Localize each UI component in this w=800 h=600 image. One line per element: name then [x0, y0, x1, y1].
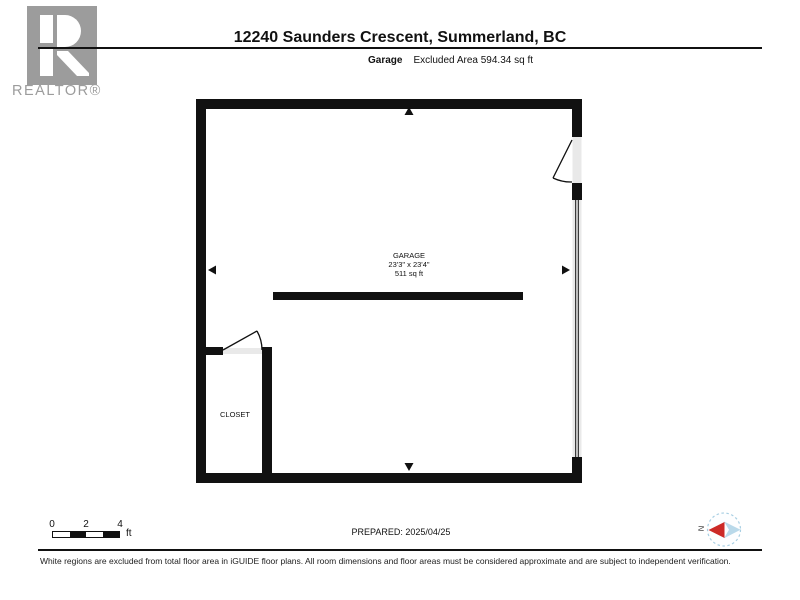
room-name: GARAGE [349, 251, 469, 260]
wall-bottom [196, 473, 582, 483]
room-dimensions: 23'3" x 23'4" [349, 260, 469, 269]
floor-plan-drawing [0, 0, 800, 600]
wall-interior [273, 292, 523, 300]
wall-right-bottom [572, 457, 582, 483]
wall-right-stub [572, 183, 582, 200]
disclaimer-text: White regions are excluded from total fl… [40, 556, 780, 566]
garage-door-opening [573, 200, 582, 457]
plan-walls [196, 99, 582, 483]
arrow-down-icon [405, 463, 414, 471]
room-name: CLOSET [205, 410, 265, 419]
entry-door-swing [553, 140, 572, 182]
wall-left [196, 99, 206, 483]
wall-right-top [572, 99, 582, 137]
wall-closet-top [206, 347, 223, 355]
closet-room-label: CLOSET [205, 410, 265, 419]
closet-door-opening [223, 348, 262, 354]
floor-plan-page: REALTOR® 12240 Saunders Crescent, Summer… [0, 0, 800, 600]
compass-icon [703, 509, 745, 551]
compass-north-label: N [696, 525, 705, 532]
entry-door-opening [573, 137, 582, 183]
arrow-right-icon [562, 266, 570, 275]
wall-top [196, 99, 582, 109]
garage-room-label: GARAGE 23'3" x 23'4" 511 sq ft [349, 251, 469, 278]
footer-divider [38, 549, 762, 551]
prepared-date: PREPARED: 2025/04/25 [0, 527, 800, 537]
closet-door-swing [223, 331, 262, 350]
arrow-left-icon [208, 266, 216, 275]
room-area: 511 sq ft [349, 269, 469, 278]
